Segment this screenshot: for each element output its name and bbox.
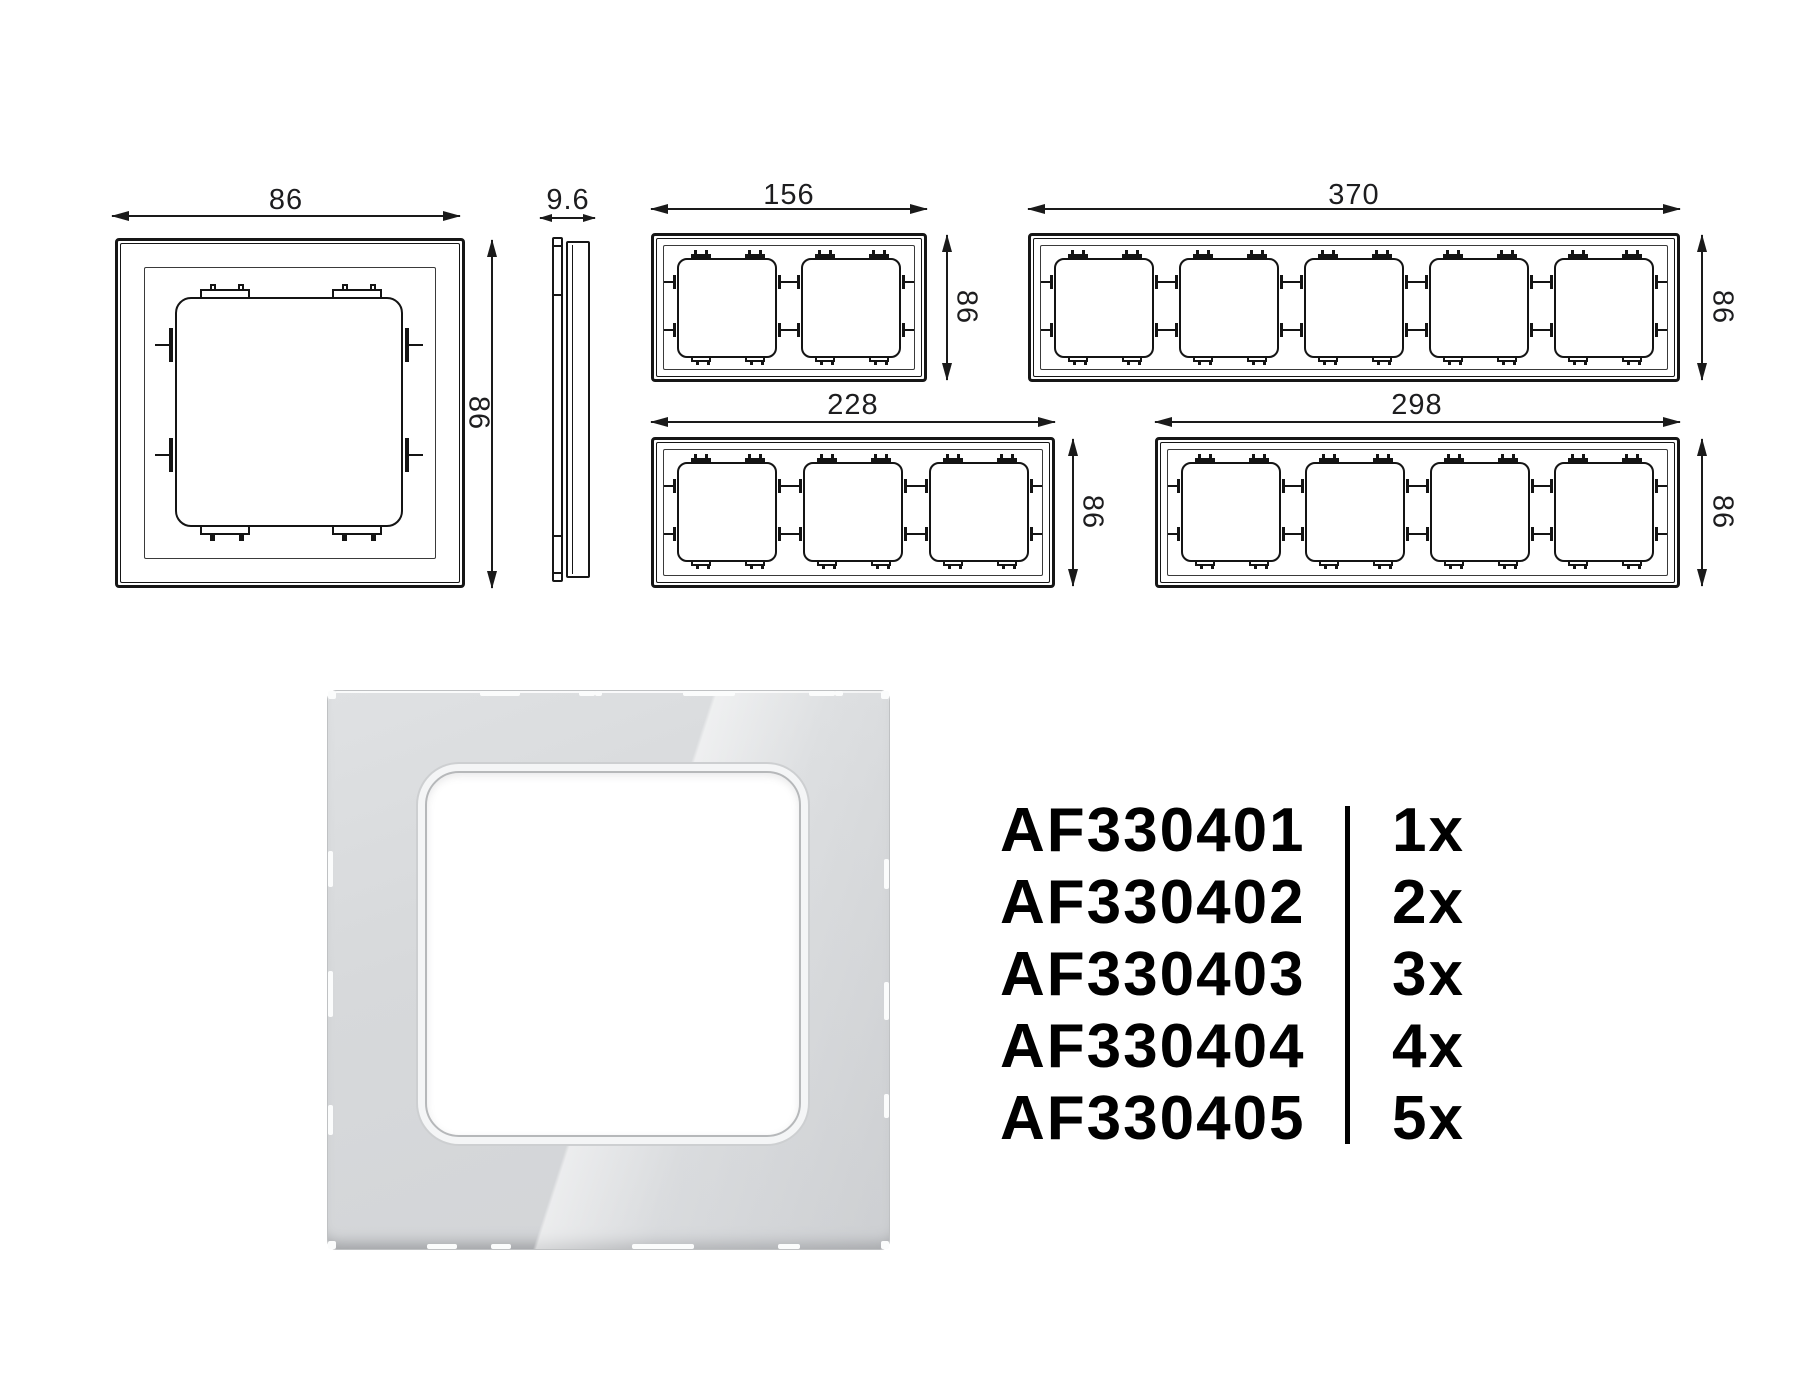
mounting-clip-bottom — [1068, 356, 1088, 362]
gang-opening — [677, 258, 777, 358]
side-pin — [778, 479, 781, 493]
side-pin — [1300, 275, 1303, 289]
mounting-clip-bottom — [691, 560, 711, 566]
mounting-clip-bottom — [1373, 560, 1393, 566]
side-pin — [1531, 479, 1534, 493]
edge-glint — [595, 691, 602, 696]
side-pin — [902, 323, 905, 337]
mounting-clip-bottom — [1319, 560, 1339, 566]
mounting-clip-top — [869, 254, 889, 260]
mounting-clip-top — [1122, 254, 1142, 260]
edge-glint — [491, 1244, 511, 1249]
gang-opening — [175, 297, 403, 527]
dimension-label-height: 86 — [1078, 495, 1107, 529]
corner-glint — [881, 691, 889, 699]
mounting-clip-top — [815, 254, 835, 260]
side-pin — [1655, 323, 1658, 337]
mounting-clip-bottom — [1249, 560, 1269, 566]
edge-glint — [884, 859, 889, 889]
mounting-clip-bottom — [869, 356, 889, 362]
mounting-clip-top — [745, 254, 765, 260]
side-pin — [1155, 323, 1158, 337]
side-pin — [673, 275, 676, 289]
corner-glint — [328, 1241, 336, 1249]
side-pin — [1655, 275, 1658, 289]
mounting-clip-top — [1568, 458, 1588, 464]
edge-glint — [683, 691, 735, 696]
mounting-clip-bottom — [745, 560, 765, 566]
side-pin — [1282, 527, 1285, 541]
edge-glint — [328, 971, 333, 1017]
side-pin — [1282, 479, 1285, 493]
side-pin — [1550, 479, 1553, 493]
gang-opening — [1179, 258, 1279, 358]
side-pin — [1050, 275, 1053, 289]
part-code: AF330403 — [1000, 944, 1306, 1006]
gang-opening — [1554, 258, 1654, 358]
edge-glint — [427, 1244, 457, 1249]
mounting-clip-bottom — [871, 560, 891, 566]
edge-glint — [328, 851, 333, 887]
side-pin — [925, 479, 928, 493]
side-pin — [1405, 275, 1408, 289]
mounting-clip-bottom — [943, 560, 963, 566]
side-pin — [778, 323, 781, 337]
mounting-clip-top — [817, 458, 837, 464]
mounting-clip-bottom — [745, 356, 765, 362]
edge-glint — [884, 982, 889, 1020]
dimension-label-height: 86 — [952, 290, 981, 324]
side-pin — [904, 527, 907, 541]
mounting-clip-bottom — [815, 356, 835, 362]
dimension-arrow-depth — [540, 217, 595, 219]
part-code: AF330401 — [1000, 800, 1306, 862]
mounting-clip-bottom — [1193, 356, 1213, 362]
product-photo-opening — [425, 771, 801, 1137]
frame-outline-2gang — [651, 233, 927, 382]
gang-opening — [1054, 258, 1154, 358]
part-quantity: 5x — [1392, 1088, 1465, 1150]
side-pin — [1177, 527, 1180, 541]
mounting-clip-top — [1497, 254, 1517, 260]
side-pin — [902, 275, 905, 289]
mounting-clip-top — [1443, 254, 1463, 260]
mounting-clip-bottom — [817, 560, 837, 566]
mounting-clip-bottom — [1622, 560, 1642, 566]
gang-opening — [1304, 258, 1404, 358]
mounting-clip-top — [1318, 254, 1338, 260]
edge-glint — [809, 691, 835, 696]
part-quantity: 4x — [1392, 1016, 1465, 1078]
side-pin — [1301, 479, 1304, 493]
side-pin — [778, 275, 781, 289]
side-pin — [405, 438, 409, 472]
side-pin — [797, 323, 800, 337]
side-pin — [797, 275, 800, 289]
dimension-label-width: 156 — [763, 181, 814, 210]
side-pin — [778, 527, 781, 541]
gang-opening — [803, 462, 903, 562]
mounting-clip-bottom — [200, 525, 250, 535]
gang-opening — [801, 258, 901, 358]
dimension-arrow-height — [1701, 439, 1703, 586]
mounting-clip-bottom — [1372, 356, 1392, 362]
edge-glint — [778, 1244, 800, 1249]
side-profile-carrier-layer — [566, 241, 590, 578]
part-code: AF330402 — [1000, 872, 1306, 934]
edge-glint — [884, 1094, 889, 1118]
gang-opening — [929, 462, 1029, 562]
edge-glint — [632, 1244, 694, 1249]
mounting-clip-top — [1372, 254, 1392, 260]
side-pin — [169, 438, 173, 472]
side-profile-glass-layer — [552, 237, 563, 582]
mounting-clip-bottom — [997, 560, 1017, 566]
side-pin — [1030, 479, 1033, 493]
mounting-clip-bottom — [1498, 560, 1518, 566]
side-pin — [1406, 527, 1409, 541]
side-pin — [1280, 275, 1283, 289]
side-pin — [1550, 323, 1553, 337]
mounting-clip-top — [1498, 458, 1518, 464]
side-pin — [1300, 323, 1303, 337]
side-pin — [799, 479, 802, 493]
gang-opening — [1181, 462, 1281, 562]
side-pin — [1531, 527, 1534, 541]
mounting-clip-bottom — [1247, 356, 1267, 362]
side-pin — [1050, 323, 1053, 337]
part-quantity: 1x — [1392, 800, 1465, 862]
frame-outline-4gang — [1155, 437, 1680, 588]
mounting-clip-top — [1319, 458, 1339, 464]
edge-glint — [579, 691, 595, 696]
side-pin — [169, 328, 173, 362]
mounting-clip-bottom — [1568, 356, 1588, 362]
dimension-label-height: 86 — [1708, 290, 1737, 324]
dimension-arrow-width — [651, 421, 1055, 423]
part-quantity: 3x — [1392, 944, 1465, 1006]
dimension-label-height: 86 — [1708, 495, 1737, 529]
side-pin — [1530, 275, 1533, 289]
mounting-clip-top — [745, 458, 765, 464]
dimension-label-width: 298 — [1391, 391, 1442, 420]
mounting-clip-top — [1068, 254, 1088, 260]
mounting-clip-top — [1444, 458, 1464, 464]
mounting-clip-top — [1568, 254, 1588, 260]
mounting-clip-top — [1373, 458, 1393, 464]
mounting-clip-top — [332, 289, 382, 299]
mounting-clip-bottom — [1497, 356, 1517, 362]
corner-glint — [881, 1241, 889, 1249]
mounting-clip-bottom — [1444, 560, 1464, 566]
dimension-label-width: 370 — [1328, 181, 1379, 210]
frame-outline-5gang — [1028, 233, 1680, 382]
mounting-clip-bottom — [1318, 356, 1338, 362]
spec-sheet: 86 86 9.6 156 86 370 86 228 — [0, 0, 1800, 1400]
mounting-clip-bottom — [1195, 560, 1215, 566]
side-pin — [799, 527, 802, 541]
dimension-arrow-height — [1072, 439, 1074, 586]
side-pin — [673, 479, 676, 493]
side-pin — [1177, 479, 1180, 493]
side-pin — [405, 328, 409, 362]
gang-opening — [1430, 462, 1530, 562]
part-code: AF330405 — [1000, 1088, 1306, 1150]
gang-opening — [1305, 462, 1405, 562]
dimension-arrow-width — [1155, 421, 1680, 423]
side-pin — [1030, 527, 1033, 541]
side-pin — [1425, 323, 1428, 337]
mounting-clip-top — [1247, 254, 1267, 260]
frame-outline-single — [115, 238, 465, 588]
mounting-clip-bottom — [1443, 356, 1463, 362]
edge-glint — [835, 691, 843, 696]
mounting-clip-top — [997, 458, 1017, 464]
mounting-clip-top — [1622, 254, 1642, 260]
side-pin — [1426, 479, 1429, 493]
dimension-label-height: 86 — [464, 396, 493, 430]
mounting-clip-top — [871, 458, 891, 464]
side-pin — [1405, 323, 1408, 337]
side-pin — [1550, 275, 1553, 289]
side-pin — [1406, 479, 1409, 493]
side-pin — [904, 479, 907, 493]
mounting-clip-bottom — [1122, 356, 1142, 362]
side-pin — [673, 527, 676, 541]
product-photo — [327, 690, 890, 1250]
side-pin — [925, 527, 928, 541]
dimension-label-depth: 9.6 — [546, 186, 589, 215]
mounting-clip-bottom — [1622, 356, 1642, 362]
mounting-clip-top — [1249, 458, 1269, 464]
parts-list-divider — [1345, 806, 1350, 1144]
side-pin — [1280, 323, 1283, 337]
side-pin — [1655, 479, 1658, 493]
mounting-clip-top — [691, 254, 711, 260]
mounting-clip-top — [1195, 458, 1215, 464]
mounting-clip-top — [691, 458, 711, 464]
side-pin — [1155, 275, 1158, 289]
gang-opening — [1429, 258, 1529, 358]
mounting-clip-bottom — [691, 356, 711, 362]
part-code: AF330404 — [1000, 1016, 1306, 1078]
dimension-arrow-height — [1701, 235, 1703, 380]
gang-opening — [1554, 462, 1654, 562]
mounting-clip-top — [1622, 458, 1642, 464]
edge-glint — [328, 1105, 333, 1135]
side-pin — [1425, 275, 1428, 289]
mounting-clip-bottom — [1568, 560, 1588, 566]
part-quantity: 2x — [1392, 872, 1465, 934]
dimension-arrow-height — [946, 235, 948, 380]
mounting-clip-top — [1193, 254, 1213, 260]
edge-glint — [480, 691, 520, 696]
side-pin — [1550, 527, 1553, 541]
side-pin — [1175, 323, 1178, 337]
gang-opening — [677, 462, 777, 562]
side-pin — [1301, 527, 1304, 541]
side-pin — [673, 323, 676, 337]
side-pin — [1175, 275, 1178, 289]
mounting-clip-top — [943, 458, 963, 464]
dimension-label-width: 228 — [827, 391, 878, 420]
corner-glint — [328, 691, 336, 699]
frame-outline-3gang — [651, 437, 1055, 588]
dimension-label-width: 86 — [269, 186, 303, 215]
mounting-clip-top — [200, 289, 250, 299]
side-pin — [1426, 527, 1429, 541]
side-pin — [1655, 527, 1658, 541]
mounting-clip-bottom — [332, 525, 382, 535]
side-pin — [1530, 323, 1533, 337]
